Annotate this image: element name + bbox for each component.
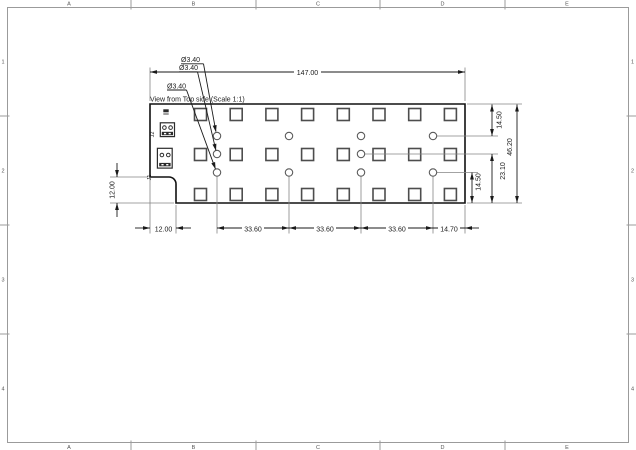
connector-base-slot <box>169 133 171 134</box>
dim-notch-height: 12.00 <box>110 181 117 199</box>
smd-pad <box>230 149 242 161</box>
mounting-hole <box>357 169 364 176</box>
grid-column-labels-top: A B C D E <box>67 2 569 8</box>
smd-pad <box>444 149 456 161</box>
smd-pads <box>195 109 457 201</box>
smd-pad <box>444 189 456 201</box>
grid-col-label-c: C <box>316 2 320 8</box>
mounting-hole <box>429 169 436 176</box>
grid-col-label-a: A <box>67 2 71 8</box>
smd-pad <box>266 149 278 161</box>
grid-col-label-d2: D <box>441 445 445 450</box>
polarity-mark <box>163 109 168 112</box>
dim-hole-pitch-1: 33.60 <box>244 226 262 233</box>
grid-row-label-2r: 2 <box>631 169 634 175</box>
grid-row-label-3r: 3 <box>631 278 634 284</box>
smd-pad <box>195 149 207 161</box>
mounting-hole <box>285 169 292 176</box>
connector-pin <box>167 153 171 157</box>
connector-pin <box>160 153 164 157</box>
smd-pad <box>409 149 421 161</box>
dim-hole-dia-3: Ø3.40 <box>167 83 186 90</box>
grid-row-label-3: 3 <box>1 278 4 284</box>
view-title: View from Top side (Scale 1:1) <box>150 97 245 104</box>
mounting-hole <box>213 132 220 139</box>
connector-base <box>162 132 173 135</box>
smd-pad <box>230 109 242 121</box>
grid-col-label-a2: A <box>67 445 71 450</box>
dim-overall-width: 147.00 <box>297 70 319 77</box>
smd-pad <box>302 109 314 121</box>
connector-pin <box>169 126 173 130</box>
grid-row-label-2: 2 <box>1 169 4 175</box>
smd-pad <box>373 109 385 121</box>
grid-col-label-c2: C <box>316 445 320 450</box>
connector-base-slot <box>166 164 168 165</box>
connector-base-slot <box>161 164 163 165</box>
smd-pad <box>302 149 314 161</box>
mounting-hole <box>429 132 436 139</box>
ref-des-j2: J2 <box>150 132 156 138</box>
grid-col-label-e: E <box>565 2 569 8</box>
smd-pad <box>302 189 314 201</box>
grid-col-label-b: B <box>192 2 196 8</box>
connector-j2: J2 <box>150 109 175 137</box>
smd-pad <box>409 109 421 121</box>
smd-pad <box>373 189 385 201</box>
mounting-hole <box>357 132 364 139</box>
mounting-hole <box>357 150 364 157</box>
grid-col-label-b2: B <box>192 445 196 450</box>
dim-hole-pitch-3: 33.60 <box>388 226 406 233</box>
smd-pad <box>266 109 278 121</box>
smd-pad <box>409 189 421 201</box>
dim-hole-right-offset: 14.70 <box>440 226 458 233</box>
grid-row-label-4r: 4 <box>631 387 634 393</box>
connector-base <box>159 163 170 166</box>
cad-drawing-canvas: A B C D E A B C D E 1 2 3 4 1 2 3 4 View… <box>0 0 636 450</box>
smd-pad <box>195 189 207 201</box>
mounting-hole <box>213 169 220 176</box>
dimension-texts: 147.00 Ø3.40 Ø3.40 Ø3.40 14.50 23.10 14.… <box>110 57 515 233</box>
drawing-sheet: A B C D E A B C D E 1 2 3 4 1 2 3 4 View… <box>0 0 636 450</box>
grid-row-labels-left: 1 2 3 4 <box>1 60 4 393</box>
dim-hole-dia-2: Ø3.40 <box>179 65 198 72</box>
grid-row-label-1r: 1 <box>631 60 634 66</box>
smd-pad <box>337 109 349 121</box>
dim-mid-row-offset: 23.10 <box>500 162 507 180</box>
dim-hole-dia-1: Ø3.40 <box>181 57 200 64</box>
grid-row-label-1: 1 <box>1 60 4 66</box>
connector-base-slot <box>164 133 166 134</box>
smd-pad <box>337 149 349 161</box>
smd-pad <box>230 189 242 201</box>
grid-column-labels-bottom: A B C D E <box>67 445 569 450</box>
smd-pad <box>195 109 207 121</box>
dim-hole-row-top-offset: 14.50 <box>497 111 504 129</box>
mounting-hole <box>213 150 220 157</box>
dim-hole-row-bottom-offset: 14.50 <box>476 173 483 191</box>
grid-col-label-d: D <box>441 2 445 8</box>
smd-pad <box>444 109 456 121</box>
grid-row-label-4: 4 <box>1 387 4 393</box>
polarity-mark-line <box>163 113 168 115</box>
smd-pad <box>373 149 385 161</box>
dim-hole-pitch-2: 33.60 <box>316 226 334 233</box>
ref-des-j1: J1 <box>147 175 153 181</box>
dim-overall-height: 46.20 <box>507 138 514 156</box>
mounting-hole <box>285 132 292 139</box>
connector-pin <box>163 126 167 130</box>
smd-pad <box>337 189 349 201</box>
smd-pad <box>266 189 278 201</box>
dim-notch-width: 12.00 <box>155 226 173 233</box>
grid-col-label-e2: E <box>565 445 569 450</box>
grid-row-labels-right: 1 2 3 4 <box>631 60 634 393</box>
